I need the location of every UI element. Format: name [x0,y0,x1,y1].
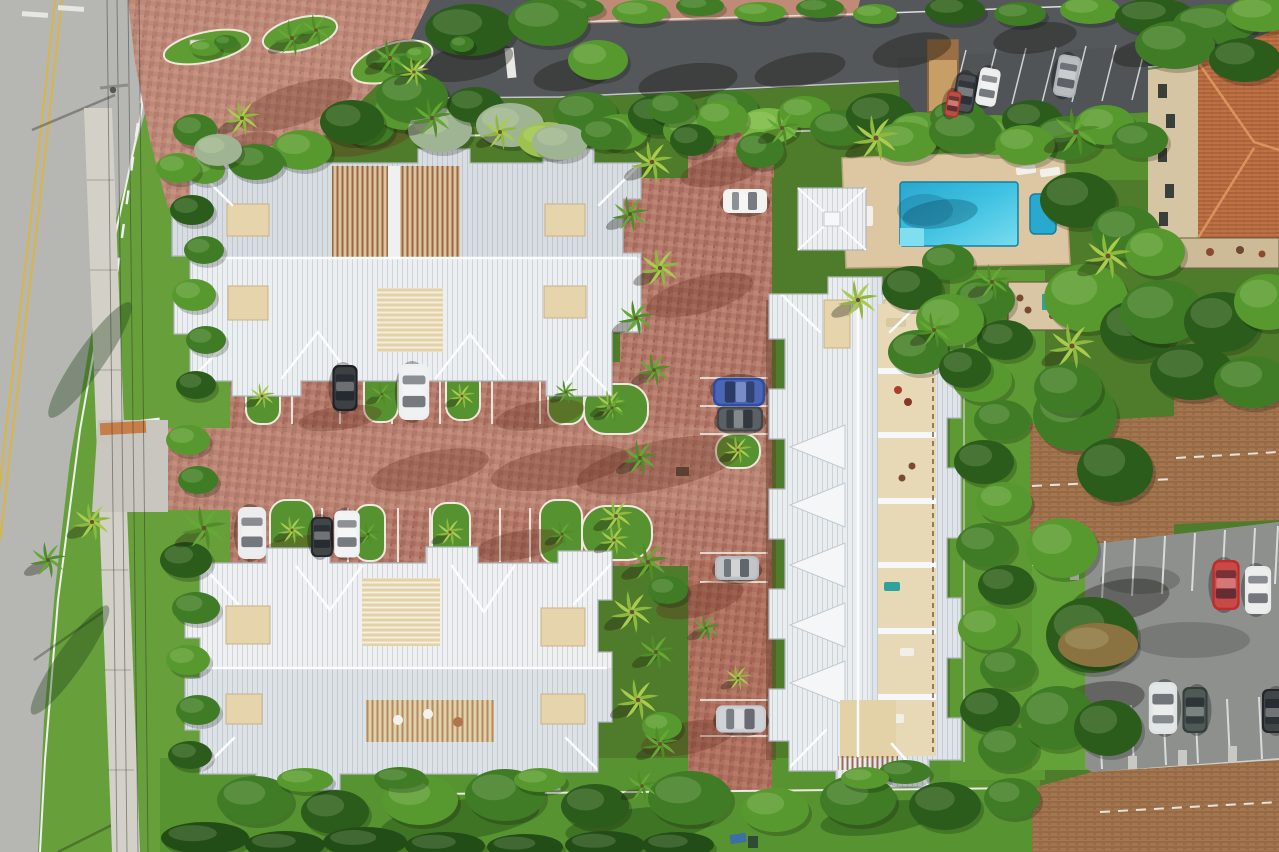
cabana-cupola [824,212,840,226]
parked-car [1262,686,1279,736]
aerial-photo-stage: Top-down drone aerial photo of a tropica… [0,0,1279,852]
aerial-photo-of-townhome-community [0,0,1279,852]
parked-car [328,362,357,414]
south-courtyard-b [840,700,896,758]
parked-car [1241,563,1271,617]
pool-cabana [798,188,866,250]
brown-roof-ne [1174,392,1279,524]
parked-car [713,705,769,736]
parked-car [395,361,430,423]
building-c [183,545,615,798]
parked-car [307,514,333,560]
parked-car [710,374,768,406]
parked-car [720,189,770,217]
green-bin [748,836,758,848]
pool-steps [900,228,924,246]
building-a [170,145,645,400]
parked-car [712,556,762,584]
parked-car [1149,679,1181,737]
stamped-accent [100,421,147,435]
parked-car [1182,684,1211,736]
parked-car [234,504,266,562]
parked-car [1208,557,1239,613]
parked-car [714,406,766,435]
parked-car [330,508,360,561]
